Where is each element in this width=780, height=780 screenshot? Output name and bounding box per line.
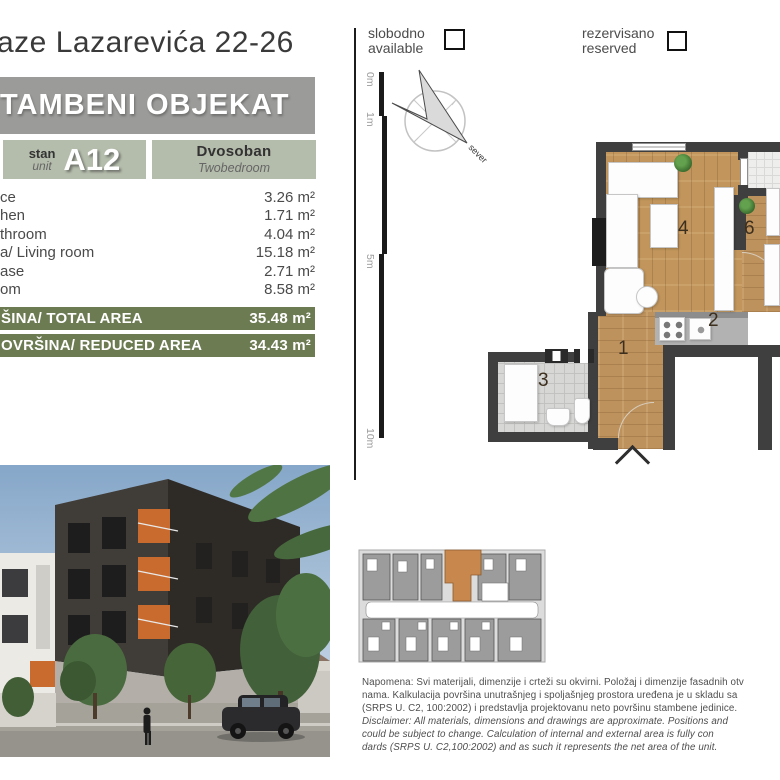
room-label: hen [0,207,25,225]
balcony-door-window [740,158,748,188]
window [632,143,686,151]
legend-available-sr: slobodno [368,26,425,41]
scale-ruler-segment [379,72,384,116]
compass-icon: sever [388,60,492,164]
total-area-value: 35.48 m² [249,310,311,327]
bathroom-sink [546,408,570,426]
reserved-checkbox[interactable] [667,31,687,51]
scale-ruler-segment [382,116,387,254]
legend-reserved: rezervisano reserved [582,26,654,55]
reduced-area-value: 34.43 m² [249,337,311,354]
disclaimer-line: nama. Kalkulacija površina unutrašnjeg i… [362,689,780,702]
room-row: hen 1.71 m² [0,207,315,225]
available-checkbox[interactable] [444,29,465,50]
room-area: 2.71 m² [264,263,315,281]
wall [758,357,772,450]
room-number-hall: 1 [618,338,629,360]
sofa [606,194,638,268]
room-area: 8.58 m² [264,281,315,299]
room-row: a/ Living room 15.18 m² [0,244,315,262]
disclaimer-line: could be subject to change. Calculation … [362,728,780,741]
legend-reserved-en: reserved [582,41,654,56]
total-area-label: ŠINA/ TOTAL AREA [1,310,143,327]
wall [663,345,780,357]
vertical-divider [354,28,356,480]
total-area-bar: ŠINA/ TOTAL AREA 35.48 m² [0,307,315,330]
key-plan [358,545,548,667]
room-number-bedroom: 6 [744,218,755,240]
plant-icon [674,154,692,172]
scale-mark: 10m [364,428,376,448]
unit-code: A12 [63,142,120,178]
bathroom-vent [545,349,568,363]
disclaimer-line: Napomena: Svi materijali, dimenzije i cr… [362,676,780,689]
room-area: 3.26 m² [264,189,315,207]
disclaimer-line: (SRPS U. C2, 100:2002) i predstavlja pro… [362,702,780,715]
closet [766,188,780,236]
disclaimer-line: Disclaimer: All materials, dimensions an… [362,715,780,728]
room-area: 1.71 m² [264,207,315,225]
floor-plan: 1 2 3 4 6 [484,138,780,468]
stove [659,317,685,341]
disclaimer-text: Napomena: Svi materijali, dimenzije i cr… [362,676,780,754]
wall [593,438,618,450]
wall [488,432,598,442]
plant-icon [739,198,755,214]
wall [596,142,780,152]
unit-label: unit [29,160,56,173]
room-number-living: 4 [678,218,689,240]
disclaimer-line: dards (SRPS U. C2,100:2002) and as such … [362,741,780,754]
bathroom-vent [574,349,594,363]
chair [636,286,658,308]
legend-available-en: available [368,41,425,56]
unit-type-cell: Dvosoban Twobedroom [152,140,316,179]
shower [504,364,538,422]
bed [764,244,780,306]
reduced-area-label: OVRŠINA/ REDUCED AREA [1,337,202,354]
unit-caption: stan unit [29,147,56,173]
room-number-bathroom: 3 [538,370,549,392]
room-row: ce 3.26 m² [0,189,315,207]
room-row: ase 2.71 m² [0,263,315,281]
room-label: a/ Living room [0,244,94,262]
unit-type-en: Twobedroom [198,160,270,177]
wall [663,345,675,450]
room-area: 15.18 m² [256,244,315,262]
room-label: ce [0,189,16,207]
scale-mark: 1m [364,112,376,127]
flyer-page: aze Lazarevića 22-26 TAMBENI OBJEKAT sta… [0,0,780,780]
wardrobe [714,187,734,311]
building-type-header: TAMBENI OBJEKAT [0,77,315,134]
room-list: ce 3.26 m² hen 1.71 m² throom 4.04 m² a/… [0,189,315,299]
unit-type-sr: Dvosoban [197,143,272,160]
room-label: throom [0,226,47,244]
room-label: ase [0,263,24,281]
legend-reserved-sr: rezervisano [582,26,654,41]
room-row: throom 4.04 m² [0,226,315,244]
unit-cell: stan unit A12 [3,140,146,179]
coffee-table [650,204,678,248]
scale-ruler-segment [379,254,384,438]
room-area: 4.04 m² [264,226,315,244]
room-number-kitchen: 2 [708,310,719,332]
north-arrow-icon [392,70,467,143]
stan-label: stan [29,147,56,160]
wall [488,352,498,442]
room-row: om 8.58 m² [0,281,315,299]
scale-mark: 0m [364,72,376,87]
building-type-label: TAMBENI OBJEKAT [0,89,289,122]
building-photo [0,465,330,757]
toilet [574,398,590,424]
shaft [592,218,606,266]
sofa [608,162,678,198]
reduced-area-bar: OVRŠINA/ REDUCED AREA 34.43 m² [0,334,315,357]
scale-mark: 5m [364,254,376,269]
room-label: om [0,281,21,299]
wall [588,312,598,449]
legend-available: slobodno available [368,26,425,55]
address-title: aze Lazarevića 22-26 [0,26,294,60]
